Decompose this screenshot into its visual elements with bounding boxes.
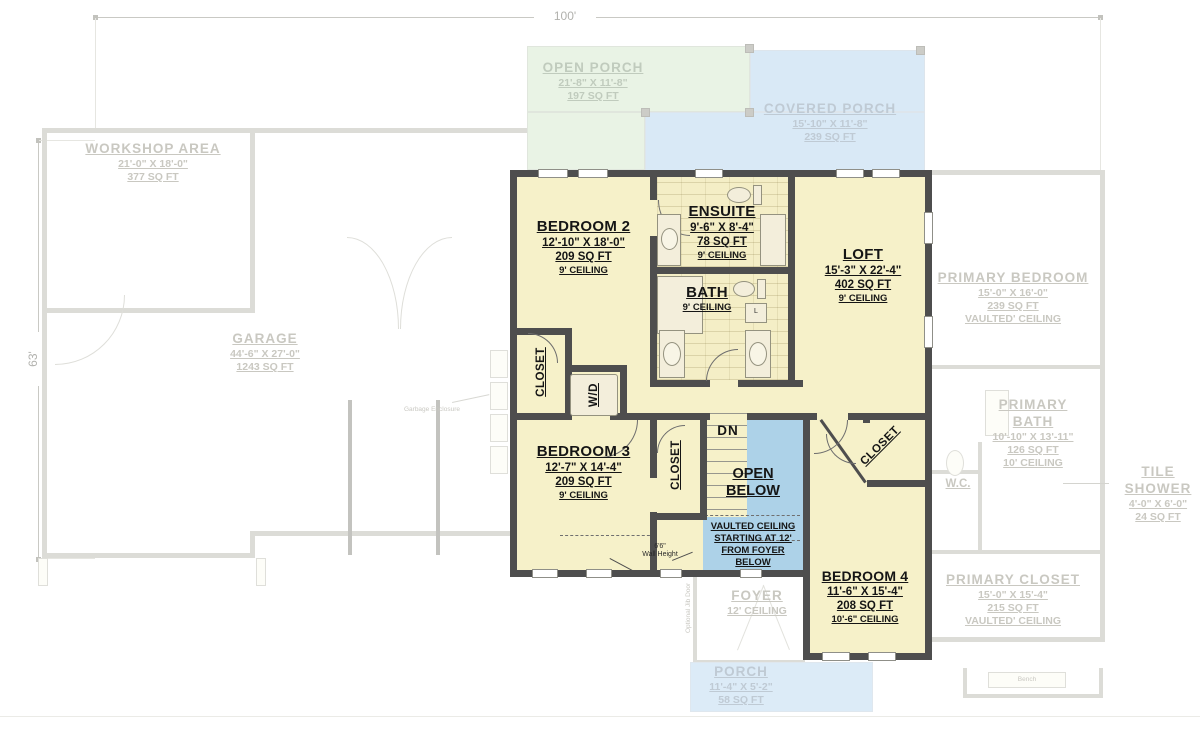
- primary-suite-wall-top: [932, 170, 1105, 175]
- primary-suite-divider1: [932, 365, 1104, 369]
- primary-bath-label: PRIMARY BATH 10'-10" X 13'-11" 126 SQ FT…: [973, 397, 1093, 470]
- open-porch-area-lower: [527, 112, 645, 170]
- workshop-wall-right: [250, 128, 255, 313]
- window: [836, 169, 864, 178]
- bedroom3-label: BEDROOM 3 12'-7" X 14'-4" 209 SQ FT 9' C…: [517, 443, 650, 501]
- garbage-enclosure-label: Garbage Enclosure: [393, 406, 471, 414]
- window: [924, 212, 933, 244]
- tile-shower-leader-line: [1063, 483, 1109, 484]
- optional-jib-door-label: Optional Jib Door: [685, 568, 693, 648]
- ensuite-bath-divider: [650, 267, 795, 274]
- floor-plan-canvas: 100' 63' WORKSHOP AREA 21'-0" X 18'-0" 3…: [0, 0, 1200, 735]
- garage-post-line: [348, 400, 352, 555]
- covered-porch-label: COVERED PORCH 15'-10" X 11'-8" 239 SQ FT: [752, 101, 908, 144]
- window: [924, 316, 933, 348]
- window: [586, 569, 612, 578]
- bedroom23-divider-left: [510, 413, 568, 420]
- porch-post: [745, 44, 754, 53]
- loft-label: LOFT 15'-3" X 22'-4" 402 SQ FT 9' CEILIN…: [798, 246, 928, 304]
- top-dimension-label: 100': [534, 9, 596, 23]
- bench-wall-right: [1099, 668, 1103, 696]
- closet-bedroom2-label: CLOSET: [535, 332, 547, 412]
- window: [740, 569, 762, 578]
- bedroom23-divider-right: [610, 413, 710, 420]
- primary-suite-wall-bottom: [932, 637, 1105, 642]
- open-below-label: OPEN BELOW: [711, 466, 795, 499]
- garage-wall-bottom-left: [42, 553, 253, 558]
- first-floor-cabinet: [490, 446, 508, 474]
- foyer-label: FOYER 12' CEILING: [710, 588, 804, 618]
- washer-dryer-label: W/D: [588, 373, 600, 417]
- ensuite-label: ENSUITE 9'-6" X 8'-4" 78 SQ FT 9' CEILIN…: [655, 203, 789, 261]
- window: [538, 169, 568, 178]
- open-below-note: VAULTED CEILING STARTING AT 12' FROM FOY…: [703, 521, 803, 569]
- garage-door-arc: [347, 237, 399, 329]
- tile-shower-label: TILE SHOWER 4'-0" X 6'-0" 24 SQ FT: [1106, 464, 1200, 524]
- wall-height-note: 6'6" Wall Height: [628, 543, 692, 560]
- ensuite-toilet-bowl: [727, 187, 751, 203]
- first-floor-cabinet: [490, 350, 508, 378]
- bath-sink-left: [663, 342, 681, 366]
- wd-wall-top: [565, 365, 627, 372]
- stairs-dn-label: DN: [709, 423, 747, 439]
- left-dimension-label: 63': [26, 332, 40, 386]
- wc-toilet-symbol: [946, 450, 964, 476]
- first-floor-cabinet: [490, 382, 508, 410]
- open-below-dashed-line: [705, 515, 800, 516]
- bath-wall-bottom-right: [738, 380, 803, 387]
- bench-label: Bench: [988, 676, 1066, 684]
- primary-suite-wall-right: [1100, 170, 1105, 640]
- primary-suite-divider2: [932, 550, 1104, 554]
- wall-left: [510, 170, 517, 577]
- open-porch-label: OPEN PORCH 21'-8" X 11'-8" 197 SQ FT: [523, 60, 663, 103]
- bench-wall-left: [963, 668, 967, 696]
- garage-label: GARAGE 44'-6" X 27'-0" 1243 SQ FT: [195, 331, 335, 374]
- closet3-wall-bottom: [655, 513, 705, 520]
- primary-closet-label: PRIMARY CLOSET 15'-0" X 15'-4" 215 SQ FT…: [935, 572, 1091, 628]
- bedroom2-ensuite-wall-upper: [650, 170, 657, 200]
- bath-toilet-tank: [757, 279, 766, 299]
- bath-sink-right: [749, 342, 767, 366]
- porch-post: [641, 108, 650, 117]
- hall-wall-mid: [747, 413, 817, 420]
- garage-door-arc: [55, 295, 125, 365]
- window: [695, 169, 723, 178]
- first-floor-cabinet: [490, 414, 508, 442]
- closet3-wall-right: [700, 413, 707, 520]
- closet-bedroom3-label: CLOSET: [670, 425, 682, 505]
- ensuite-toilet-tank: [753, 185, 762, 205]
- bath-wall-bottom-left: [650, 380, 710, 387]
- porch-label: PORCH 11'-4" X 5'-2" 58 SQ FT: [689, 664, 793, 707]
- window: [532, 569, 558, 578]
- garage-wall-left: [42, 128, 47, 558]
- garage-porch-post: [256, 558, 266, 586]
- dimension-extension: [95, 18, 96, 128]
- closet4-wall-bottom: [867, 480, 925, 487]
- wc-label: W.C.: [936, 477, 980, 491]
- bath-label: BATH 9' CEILING: [657, 284, 757, 313]
- wd-wall-right: [620, 365, 627, 420]
- bedroom4-label: BEDROOM 4 11'-6" X 15'-4" 208 SQ FT 10'-…: [805, 568, 925, 625]
- primary-bedroom-label: PRIMARY BEDROOM 15'-0" X 16'-0" 239 SQ F…: [935, 270, 1091, 326]
- sheet-bottom-line: [0, 716, 1200, 717]
- bedroom3-wall-right-upper: [650, 420, 657, 478]
- bench-wall-bottom: [963, 694, 1103, 698]
- garbage-leader-line: [452, 394, 489, 403]
- porch-post: [916, 46, 925, 55]
- garage-door-arc: [400, 237, 452, 329]
- window: [822, 652, 850, 661]
- ensuite-loft-wall: [788, 170, 795, 387]
- window: [872, 169, 900, 178]
- bedroom3-dashed-line: [560, 535, 655, 536]
- garage-porch-post: [38, 558, 48, 586]
- window: [660, 569, 682, 578]
- hall-wall-right: [848, 413, 925, 420]
- garage-post-line: [436, 400, 440, 555]
- top-dimension-line: [95, 17, 1102, 18]
- closet4-wall-stub: [863, 413, 870, 423]
- window: [868, 652, 896, 661]
- window: [578, 169, 608, 178]
- bedroom2-label: BEDROOM 2 12'-10" X 18'-0" 209 SQ FT 9' …: [517, 218, 650, 276]
- workshop-label: WORKSHOP AREA 21'-0" X 18'-0" 377 SQ FT: [83, 141, 223, 184]
